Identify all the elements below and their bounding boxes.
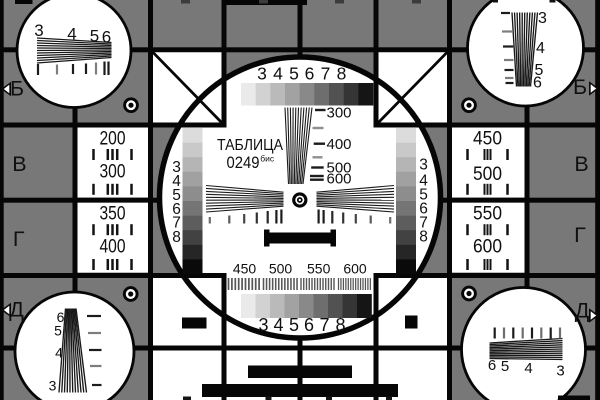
svg-text:3: 3 [49,378,57,394]
svg-text:3: 3 [538,10,547,27]
svg-text:8: 8 [337,64,347,84]
svg-text:8: 8 [419,228,428,245]
svg-text:200: 200 [100,129,126,150]
svg-text:450: 450 [233,261,257,277]
svg-text:6: 6 [488,357,496,374]
svg-text:6: 6 [102,28,111,47]
svg-text:3: 3 [257,64,267,84]
svg-text:Д: Д [9,298,24,322]
svg-text:ТАБЛИЦА: ТАБЛИЦА [217,137,283,154]
svg-text:6: 6 [533,75,542,92]
svg-text:4: 4 [67,25,76,44]
svg-text:5: 5 [501,358,509,375]
svg-text:550: 550 [473,204,502,225]
svg-text:5: 5 [54,323,62,339]
svg-text:500: 500 [473,164,502,185]
svg-text:3: 3 [258,315,268,335]
svg-text:4: 4 [536,40,545,57]
svg-text:8: 8 [335,315,345,335]
svg-text:300: 300 [327,105,352,122]
svg-text:6: 6 [304,315,314,335]
svg-text:3: 3 [34,21,43,40]
svg-text:В: В [574,152,588,176]
svg-text:500: 500 [269,261,293,277]
svg-text:600: 600 [343,261,367,277]
svg-text:7: 7 [321,64,331,84]
svg-text:6: 6 [305,64,315,84]
svg-text:Г: Г [574,223,586,247]
svg-text:350: 350 [100,204,126,225]
svg-text:4: 4 [524,360,532,377]
svg-text:600: 600 [327,171,352,188]
svg-text:0249: 0249 [227,154,260,172]
svg-text:Г: Г [13,227,25,251]
svg-text:5: 5 [289,315,299,335]
svg-text:400: 400 [100,237,126,258]
svg-text:5: 5 [90,27,99,46]
svg-text:бис: бис [260,154,275,164]
svg-text:4: 4 [273,64,283,84]
svg-text:Б: Б [573,75,587,99]
svg-text:300: 300 [100,162,126,183]
svg-text:450: 450 [473,129,502,150]
svg-text:550: 550 [307,261,331,277]
svg-text:В: В [12,152,26,176]
svg-text:3: 3 [556,363,564,380]
svg-text:3: 3 [419,156,428,173]
svg-text:600: 600 [473,237,502,258]
svg-text:Б: Б [10,77,24,101]
svg-text:4: 4 [273,315,283,335]
svg-text:7: 7 [319,315,329,335]
svg-text:4: 4 [55,344,63,360]
svg-text:400: 400 [327,136,352,153]
svg-text:8: 8 [172,229,181,246]
svg-text:Д: Д [575,299,590,323]
svg-text:5: 5 [289,64,299,84]
